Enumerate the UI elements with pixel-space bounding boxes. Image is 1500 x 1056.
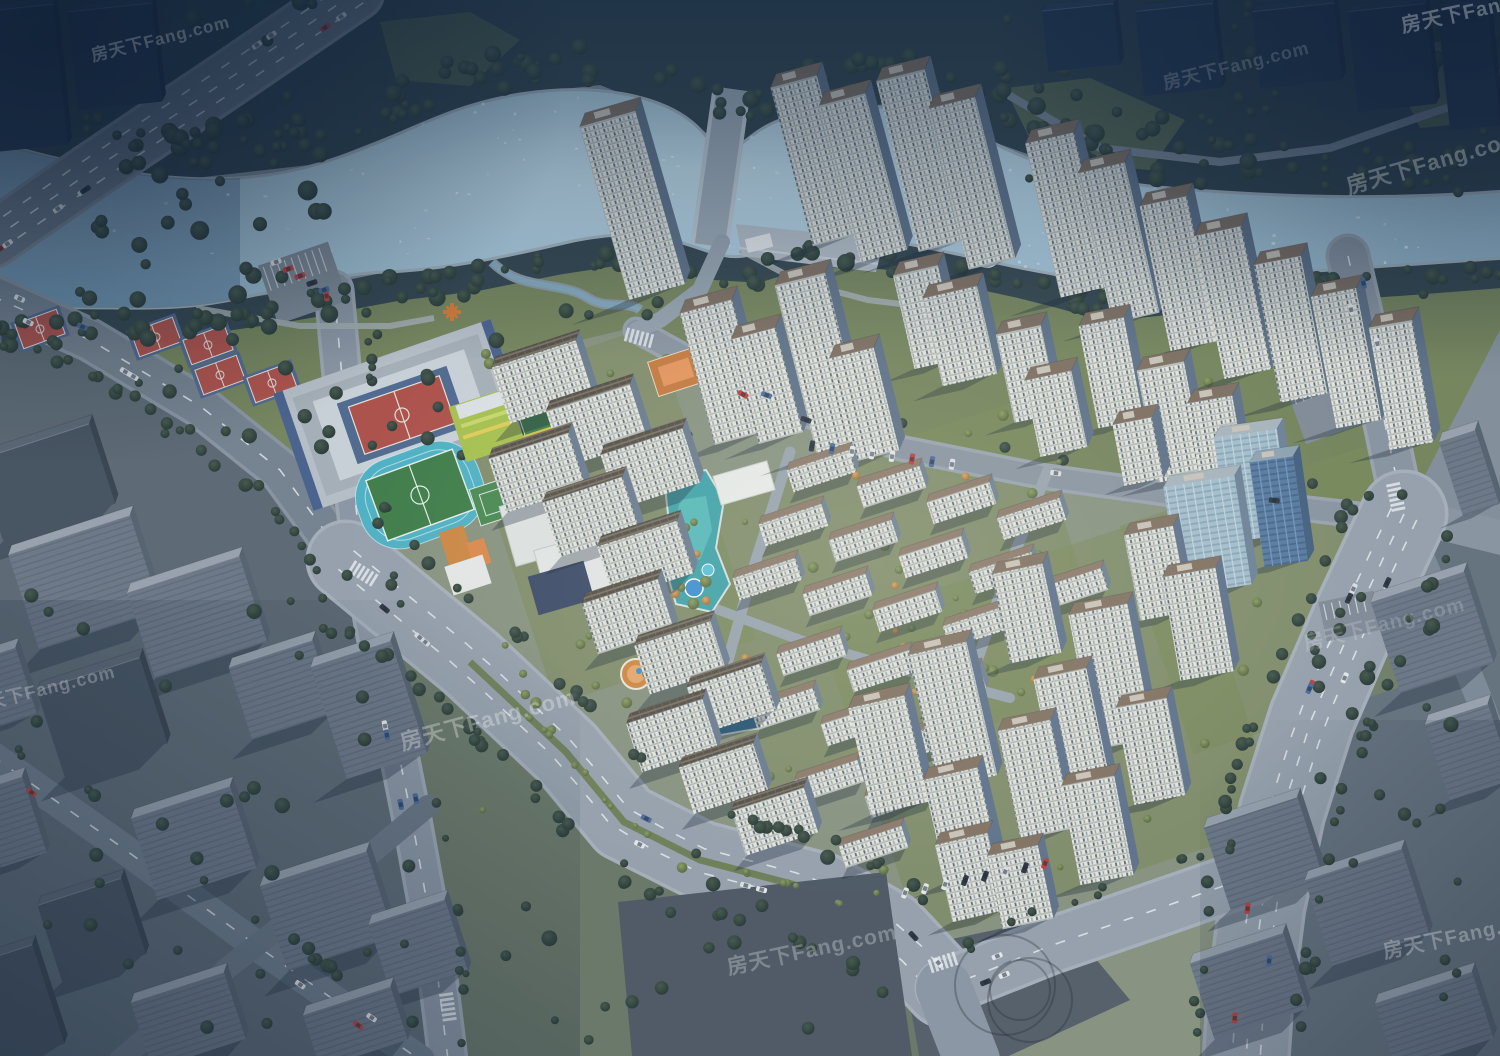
lighting-effects-layer [0,0,1500,1056]
aerial-render-image: 房天下Fang.com房天下Fang.com房天下Fang.com房天下Fang… [0,0,1500,1056]
render-scene [0,0,1500,1056]
